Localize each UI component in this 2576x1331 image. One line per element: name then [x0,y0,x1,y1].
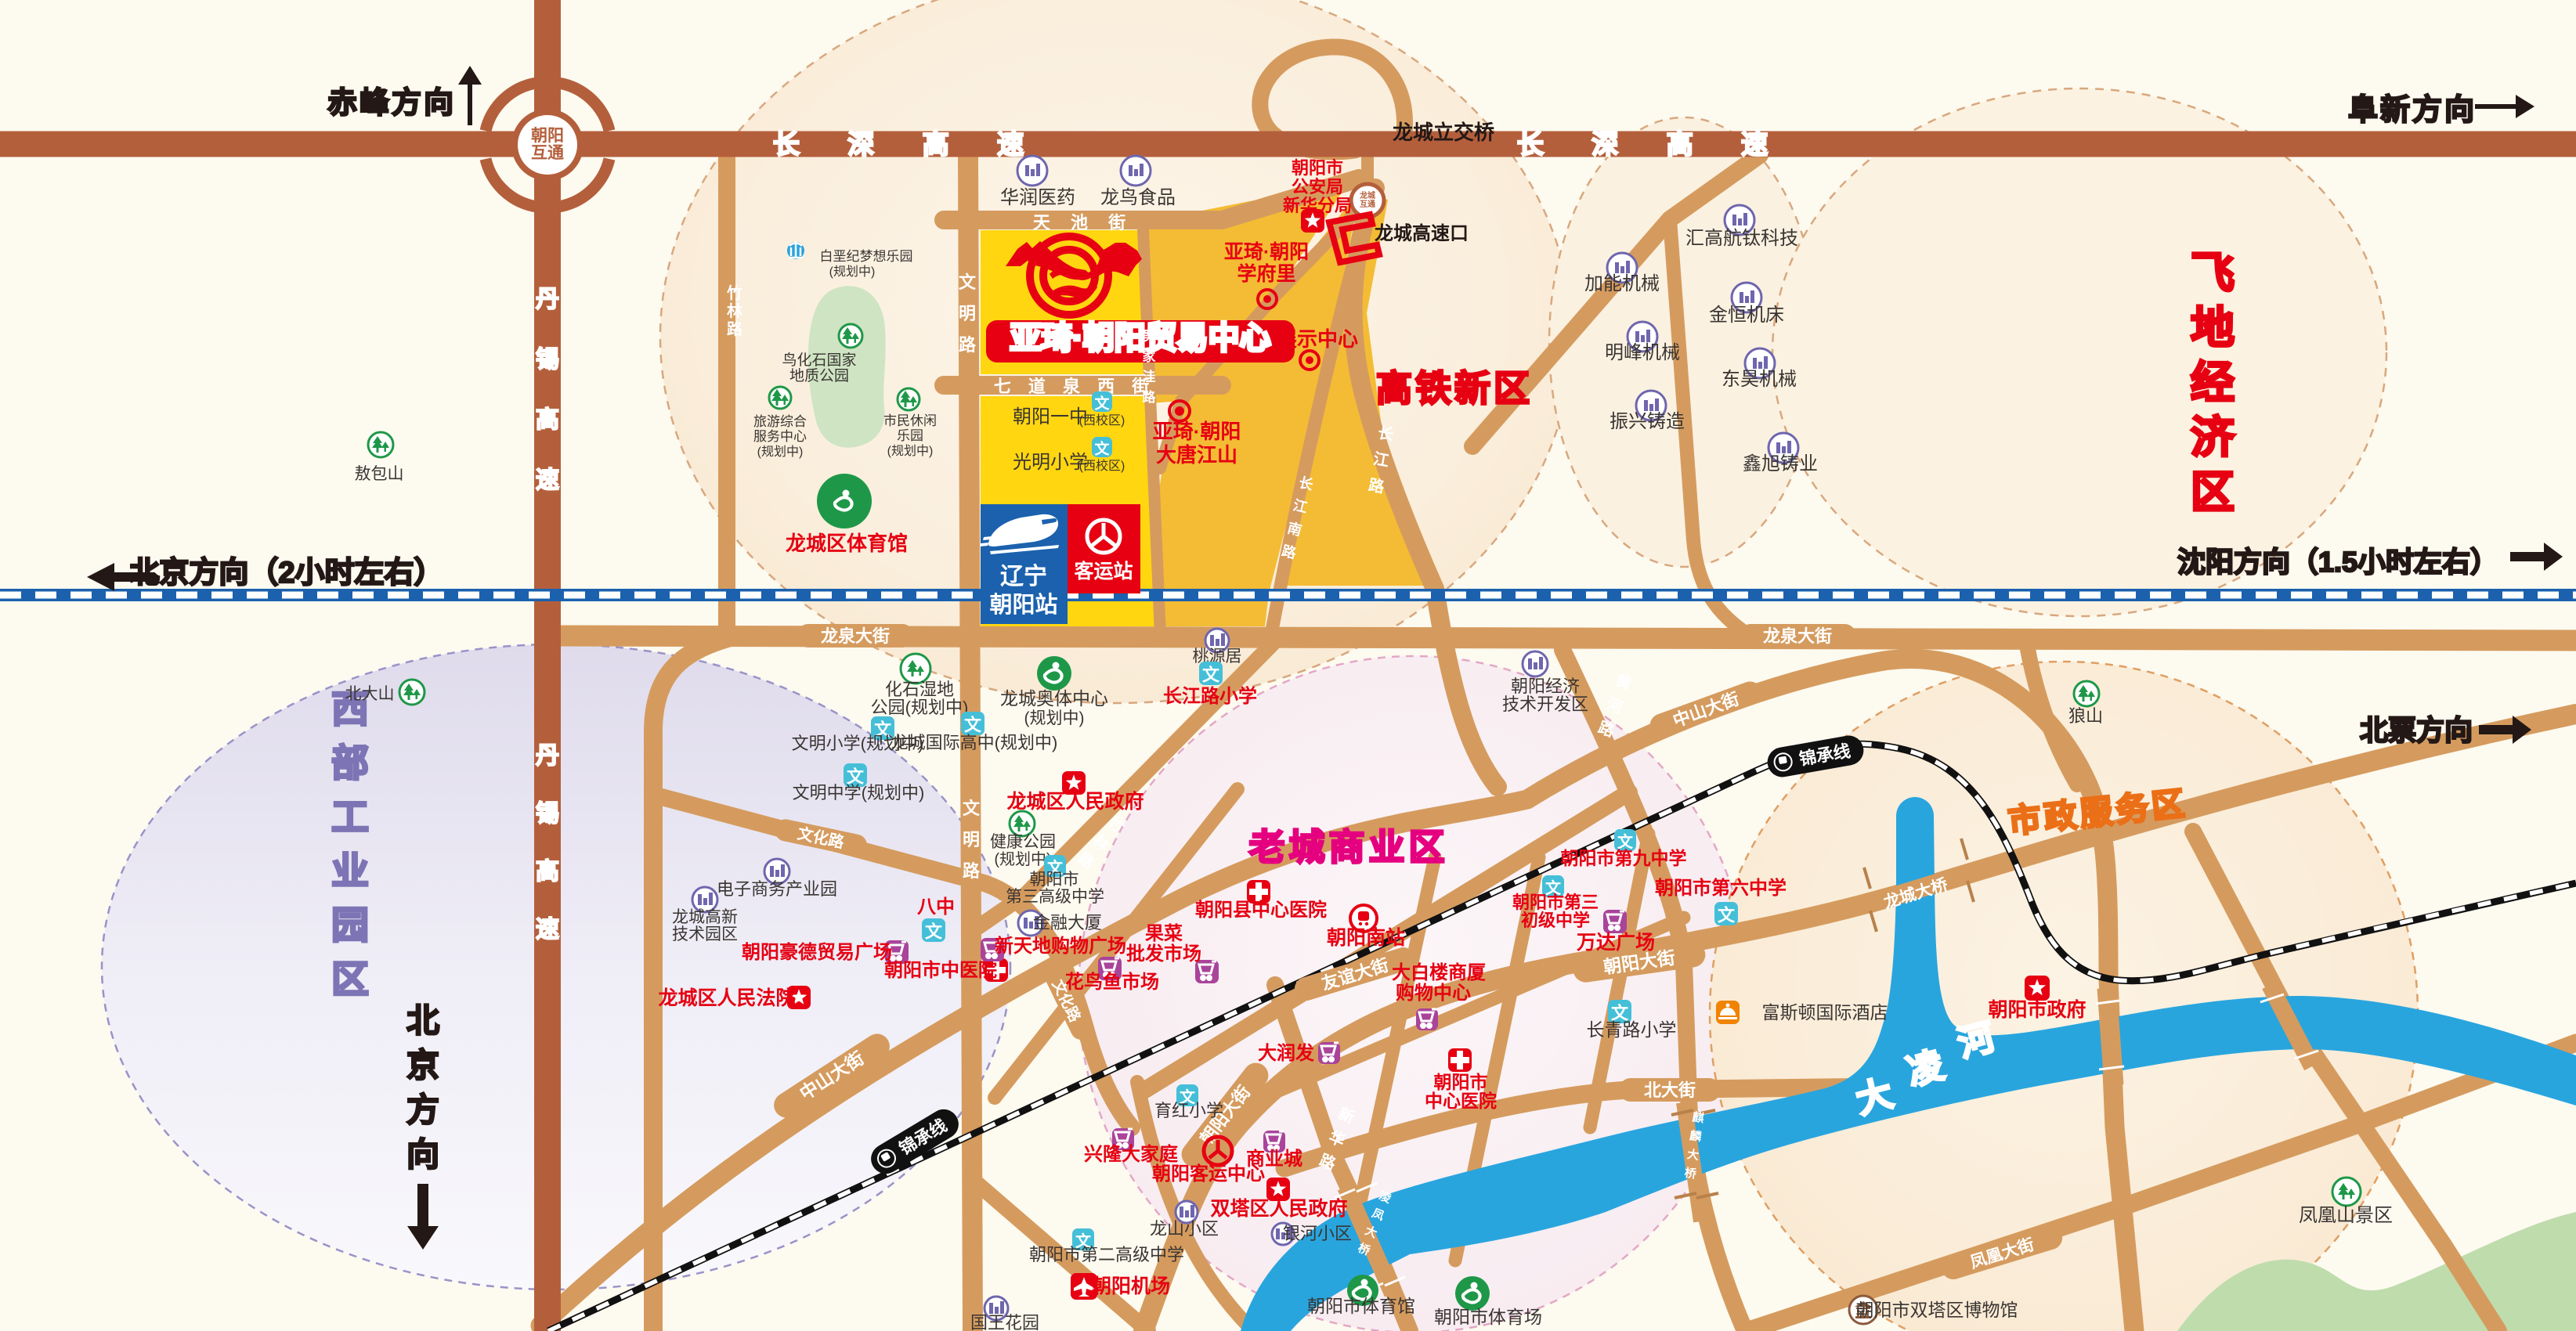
svg-text:北票方向: 北票方向 [2360,714,2473,746]
svg-text:加能机械: 加能机械 [1584,273,1660,294]
svg-text:工: 工 [331,797,369,839]
svg-text:亚琦·朝阳: 亚琦·朝阳 [1224,241,1309,263]
svg-text:初级中学: 初级中学 [1521,911,1590,930]
svg-text:龙泉大街: 龙泉大街 [821,626,890,646]
svg-text:朝阳市双塔区博物馆: 朝阳市双塔区博物馆 [1856,1300,2018,1320]
svg-text:长江路小学: 长江路小学 [1163,685,1257,707]
svg-text:文: 文 [1718,906,1736,925]
svg-text:龙城国际高中(规划中): 龙城国际高中(规划中) [891,733,1058,752]
svg-text:汇高航钛科技: 汇高航钛科技 [1685,228,1798,249]
svg-text:老城商业区: 老城商业区 [1249,827,1449,867]
svg-text:速: 速 [536,467,559,493]
svg-text:龙城区人民法院: 龙城区人民法院 [658,987,795,1009]
svg-text:大: 大 [1686,1147,1700,1163]
svg-text:龙城: 龙城 [1359,190,1375,200]
svg-text:国王花园: 国王花园 [970,1313,1039,1331]
svg-text:文明中学(规划中): 文明中学(规划中) [793,783,925,803]
svg-text:公园(规划中): 公园(规划中) [871,698,969,717]
svg-text:龙城区体育馆: 龙城区体育馆 [786,532,908,555]
svg-text:龙山小区: 龙山小区 [1150,1219,1219,1239]
svg-text:朝阳经济: 朝阳经济 [1511,676,1580,696]
svg-text:龙城立交桥: 龙城立交桥 [1393,121,1495,144]
svg-text:长 深 高 速: 长 深 高 速 [773,130,1044,160]
svg-text:朝阳市第九中学: 朝阳市第九中学 [1561,848,1687,868]
svg-text:沈阳方向（1.5小时左右）: 沈阳方向（1.5小时左右） [2177,546,2498,578]
svg-text:区: 区 [2191,467,2235,517]
svg-text:育红小学: 育红小学 [1154,1101,1223,1120]
svg-text:化石湿地: 化石湿地 [885,680,954,699]
svg-text:文: 文 [1202,665,1220,685]
svg-text:中心医院: 中心医院 [1425,1091,1497,1111]
svg-text:业: 业 [331,851,369,893]
svg-text:亚琦·朝阳: 亚琦·朝阳 [1153,420,1241,443]
svg-text:部: 部 [331,743,369,785]
svg-text:光明小学: 光明小学 [1013,452,1088,473]
svg-text:龙城奥体中心: 龙城奥体中心 [1000,688,1108,709]
svg-text:狼山: 狼山 [2068,706,2103,726]
svg-text:大唐江山: 大唐江山 [1156,443,1237,467]
svg-text:客运站: 客运站 [1074,560,1133,583]
svg-text:批发市场: 批发市场 [1126,943,1201,965]
svg-text:明: 明 [959,304,976,323]
svg-text:旅游综合: 旅游综合 [753,414,807,429]
svg-text:朝阳县中心医院: 朝阳县中心医院 [1195,899,1327,921]
svg-text:林: 林 [727,301,742,320]
svg-text:朝阳市第六中学: 朝阳市第六中学 [1655,877,1787,899]
svg-text:京: 京 [406,1047,439,1084]
svg-text:朝阳市体育馆: 朝阳市体育馆 [1307,1296,1415,1316]
svg-text:朝阳一中: 朝阳一中 [1013,406,1088,427]
svg-text:朝阳南站: 朝阳南站 [1327,927,1405,949]
svg-text:路: 路 [959,335,977,355]
svg-text:东昊机械: 东昊机械 [1722,369,1797,390]
svg-text:朝阳市体育场: 朝阳市体育场 [1434,1307,1542,1327]
svg-text:麒: 麒 [1692,1109,1705,1125]
svg-text:大润发: 大润发 [1258,1042,1314,1064]
svg-text:鸟化石国家: 鸟化石国家 [782,352,856,369]
svg-text:地质公园: 地质公园 [789,367,849,384]
svg-text:亚琦·朝阳贸易中心: 亚琦·朝阳贸易中心 [1010,321,1270,355]
svg-text:购物中心: 购物中心 [1396,983,1471,1004]
svg-text:技术开发区: 技术开发区 [1502,694,1588,714]
svg-text:(规划中): (规划中) [829,265,876,279]
svg-text:第三高级中学: 第三高级中学 [1006,888,1104,906]
svg-text:互通: 互通 [1360,200,1375,209]
svg-text:竹: 竹 [726,283,742,302]
svg-text:锡: 锡 [536,801,559,827]
svg-text:互通: 互通 [531,144,564,162]
svg-text:丹: 丹 [536,743,559,769]
svg-text:朝阳市第二高级中学: 朝阳市第二高级中学 [1029,1245,1184,1264]
svg-text:文: 文 [959,272,977,292]
svg-text:路: 路 [1143,389,1157,405]
svg-text:文: 文 [963,799,981,818]
svg-text:路: 路 [963,861,981,881]
svg-text:龙泉大街: 龙泉大街 [1763,626,1832,646]
svg-text:江: 江 [1371,450,1390,471]
svg-text:七 道 泉 西 街: 七 道 泉 西 街 [994,377,1155,396]
svg-text:地: 地 [2191,303,2235,352]
svg-text:文: 文 [1094,439,1110,457]
svg-text:方: 方 [406,1091,439,1128]
svg-text:技术园区: 技术园区 [672,925,738,943]
svg-text:区: 区 [331,959,369,1001]
svg-text:花鸟鱼市场: 花鸟鱼市场 [1065,971,1159,993]
svg-text:北京方向（2小时左右）: 北京方向（2小时左右） [129,557,443,590]
svg-text:朝阳机场: 朝阳机场 [1092,1275,1170,1297]
svg-text:园: 园 [331,905,369,947]
svg-text:朝阳: 朝阳 [531,126,564,145]
svg-text:辽宁: 辽宁 [1000,563,1047,590]
svg-text:新华分局: 新华分局 [1283,196,1352,215]
svg-text:高: 高 [536,407,559,433]
svg-text:锡: 锡 [536,347,559,373]
svg-text:(规划中): (规划中) [887,444,934,458]
svg-text:北大山: 北大山 [345,685,395,703]
svg-text:文: 文 [964,716,982,735]
svg-text:服务中心: 服务中心 [753,429,807,444]
svg-text:北大街: 北大街 [1644,1080,1696,1100]
svg-text:双塔区人民政府: 双塔区人民政府 [1210,1197,1347,1220]
svg-text:朝阳市中医院: 朝阳市中医院 [884,959,997,981]
svg-text:乐园: 乐园 [897,428,923,443]
svg-text:敖包山: 敖包山 [355,465,404,483]
svg-text:北: 北 [406,1002,439,1039]
svg-text:华润医药: 华润医药 [1000,187,1075,208]
svg-text:家: 家 [1143,348,1156,364]
svg-text:市民休闲: 市民休闲 [883,413,937,428]
svg-text:明峰机械: 明峰机械 [1605,342,1680,363]
svg-text:展示中心: 展示中心 [1277,327,1358,351]
svg-text:朝阳站: 朝阳站 [989,592,1057,618]
svg-text:向: 向 [406,1136,439,1173]
svg-text:金融大厦: 金融大厦 [1033,913,1102,932]
svg-text:济: 济 [2191,413,2235,462]
svg-text:飞: 飞 [2191,248,2235,298]
svg-text:天 池 街: 天 池 街 [1033,213,1133,233]
svg-text:健康公园: 健康公园 [990,833,1056,851]
svg-text:商业城: 商业城 [1246,1148,1302,1170]
svg-text:朝阳市第三: 朝阳市第三 [1512,893,1599,912]
svg-text:(西校区): (西校区) [1079,459,1125,473]
svg-text:新天地购物广场: 新天地购物广场 [995,935,1126,957]
svg-text:八中: 八中 [917,896,955,918]
svg-text:经: 经 [2191,358,2235,407]
svg-text:金恒机床: 金恒机床 [1709,305,1784,326]
svg-text:学府里: 学府里 [1237,262,1295,285]
svg-text:银河小区: 银河小区 [1283,1224,1352,1243]
svg-text:长 深 高 速: 长 深 高 速 [1517,130,1788,160]
svg-text:(规划中): (规划中) [757,445,804,459]
svg-text:万达广场: 万达广场 [1577,931,1655,954]
svg-text:文: 文 [925,922,943,942]
svg-text:朝阳市: 朝阳市 [1030,871,1079,889]
svg-text:长青路小学: 长青路小学 [1587,1019,1677,1040]
svg-text:丹: 丹 [536,287,559,312]
svg-text:朝阳市: 朝阳市 [1434,1072,1488,1092]
svg-text:公安局: 公安局 [1292,177,1343,197]
svg-text:吴: 吴 [1143,329,1156,344]
svg-text:洼: 洼 [1143,369,1156,384]
svg-text:白垩纪梦想乐园: 白垩纪梦想乐园 [820,249,913,264]
svg-text:高铁新区: 高铁新区 [1376,368,1533,409]
svg-text:路: 路 [727,319,743,338]
svg-text:朝阳市: 朝阳市 [1292,158,1343,178]
svg-text:电子商务产业园: 电子商务产业园 [717,879,837,899]
svg-text:明: 明 [963,830,980,849]
svg-text:朝阳豪德贸易广场: 朝阳豪德贸易广场 [742,941,892,963]
svg-text:振兴铸造: 振兴铸造 [1610,411,1685,432]
svg-text:文: 文 [1094,394,1110,412]
svg-text:(西校区): (西校区) [1079,413,1125,427]
svg-text:富斯顿国际酒店: 富斯顿国际酒店 [1762,1002,1888,1023]
svg-text:(规划中): (规划中) [1024,709,1085,727]
svg-text:果菜: 果菜 [1145,923,1183,944]
svg-text:朝阳市政府: 朝阳市政府 [1988,998,2086,1021]
svg-text:龙城高新: 龙城高新 [672,908,738,926]
svg-text:兴隆大家庭: 兴隆大家庭 [1084,1143,1178,1165]
svg-text:大白楼商厦: 大白楼商厦 [1392,961,1486,983]
svg-text:速: 速 [536,917,559,943]
svg-text:高: 高 [536,859,559,885]
svg-text:龙鸟食品: 龙鸟食品 [1100,187,1176,208]
svg-text:赤峰方向: 赤峰方向 [327,87,456,120]
svg-text:凤凰山景区: 凤凰山景区 [2299,1205,2393,1226]
svg-text:阜新方向: 阜新方向 [2348,94,2477,127]
svg-text:龙城高速口: 龙城高速口 [1375,222,1469,244]
svg-text:龙城区人民政府: 龙城区人民政府 [1006,790,1143,813]
svg-text:鑫旭铸业: 鑫旭铸业 [1743,453,1818,474]
svg-text:(规划中): (规划中) [994,850,1051,868]
